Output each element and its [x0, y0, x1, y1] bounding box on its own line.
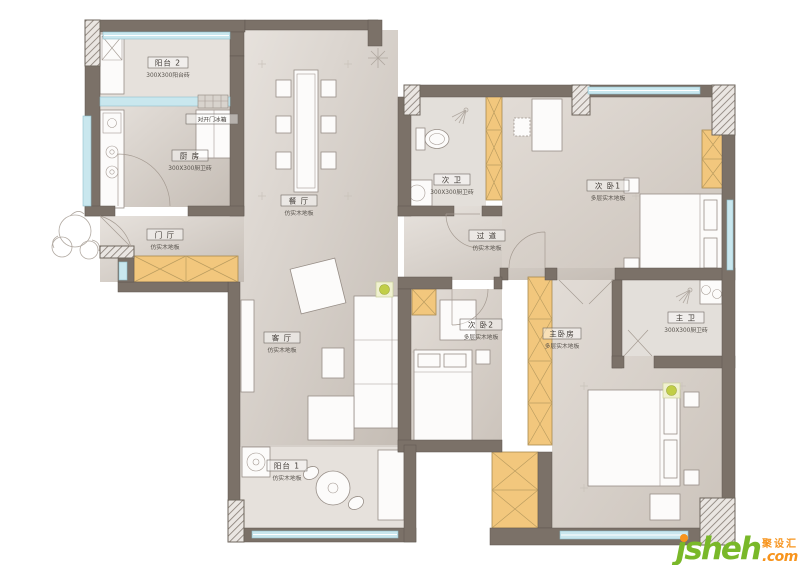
master-plant [663, 383, 680, 398]
svg-text:多层实木地板: 多层实木地板 [591, 194, 626, 202]
sofa [354, 296, 400, 428]
toilet-tank [416, 128, 425, 150]
window-hall-left [119, 262, 127, 280]
window-grille [198, 95, 228, 108]
bedroom2-pillow-1 [418, 354, 440, 367]
label-corridor: 过 道 仿实木地板 [469, 230, 505, 252]
svg-text:主卧房: 主卧房 [549, 329, 575, 339]
logo-right-block: 聚设汇 .com [762, 540, 798, 565]
label-kitchen: 厨 房 300X300厨卫砖 [168, 150, 212, 172]
wardrobe-bedroom2 [412, 289, 436, 315]
corner-plant [376, 282, 393, 297]
svg-text:仿实木地板: 仿实木地板 [273, 474, 302, 482]
svg-text:多层实木地板: 多层实木地板 [545, 342, 580, 350]
master-nightstand-1 [684, 392, 699, 407]
svg-text:厨 房: 厨 房 [180, 151, 200, 161]
label-master: 主卧房 多层实木地板 [543, 328, 581, 350]
label-balcony1: 阳台 1 仿实木地板 [267, 460, 307, 482]
dining-table [294, 70, 318, 192]
wardrobe-bath2-side [486, 95, 502, 200]
label-living: 客 厅 仿实木地板 [264, 332, 300, 354]
svg-text:300X300阳台砖: 300X300阳台砖 [146, 71, 190, 79]
washing-machine [242, 447, 270, 477]
master-nightstand-2 [684, 470, 699, 485]
logo-word: jsheh [676, 531, 760, 565]
svg-text:客 厅: 客 厅 [272, 333, 292, 343]
wardrobe-bedroom1 [702, 130, 724, 188]
svg-text:仿实木地板: 仿实木地板 [268, 346, 297, 354]
svg-text:多层实木地板: 多层实木地板 [464, 333, 499, 341]
svg-text:次 卫: 次 卫 [442, 175, 462, 185]
svg-text:仿实木地板: 仿实木地板 [285, 209, 314, 217]
window-kitchen-left [83, 116, 91, 206]
logo-dot-icon [680, 534, 688, 542]
svg-text:阳台 1: 阳台 1 [274, 461, 300, 471]
svg-text:门 厅: 门 厅 [155, 231, 175, 240]
svg-text:阳台 2: 阳台 2 [155, 58, 181, 68]
svg-text:主 卫: 主 卫 [676, 313, 696, 323]
logo-tld-text: .com [762, 550, 798, 564]
svg-text:300X300厨卫砖: 300X300厨卫砖 [168, 164, 212, 172]
label-bedroom2: 次 卧2 多层实木地板 [460, 319, 502, 341]
svg-text:次 卧2: 次 卧2 [468, 320, 494, 330]
master-pillow-2 [664, 440, 677, 478]
svg-text:过 道: 过 道 [477, 231, 497, 241]
logo-text-main: jsheh [676, 534, 760, 565]
coffee-table [322, 348, 344, 378]
logo-jsheh: jsheh 聚设汇 .com [676, 534, 798, 565]
svg-text:对开门冰箱: 对开门冰箱 [198, 116, 227, 124]
bedroom2-pillow-2 [444, 354, 466, 367]
floor-plan-page: 阳台 2 300X300阳台砖 厨 房 300X300厨卫砖 对开门冰箱 餐 厅… [0, 0, 800, 565]
wardrobe-master-south [492, 452, 538, 528]
balcony-cabinet [378, 450, 404, 520]
window-bedroom1-right [727, 200, 733, 270]
snowflake-decor-icon [368, 48, 388, 68]
label-bath1: 主 卫 300X300厨卫砖 [664, 312, 708, 334]
label-fridge: 对开门冰箱 [186, 114, 238, 124]
bedroom1-pillow-2 [704, 238, 717, 268]
shoe-cabinet-hall [134, 256, 238, 282]
kitchen-counter [100, 110, 124, 208]
svg-text:仿实木地板: 仿实木地板 [473, 244, 502, 252]
toilet-bowl [425, 130, 449, 149]
bath1-sink-counter [700, 280, 722, 304]
sofa-chaise [308, 396, 354, 440]
label-balcony2: 阳台 2 300X300阳台砖 [146, 57, 190, 79]
master-pillow-1 [664, 396, 677, 434]
svg-text:餐 厅: 餐 厅 [289, 197, 309, 206]
label-bath2: 次 卫 300X300厨卫砖 [430, 174, 474, 196]
bedroom2-nightstand [476, 350, 490, 364]
master-bench [650, 494, 680, 520]
label-dining: 餐 厅 仿实木地板 [281, 195, 317, 217]
floor-plan-canvas: 阳台 2 300X300阳台砖 厨 房 300X300厨卫砖 对开门冰箱 餐 厅… [0, 0, 800, 565]
label-bedroom1: 次 卧1 多层实木地板 [587, 180, 629, 202]
bedroom1-desk [532, 99, 562, 151]
entry-plant-sketch [52, 211, 99, 259]
balcony2-cabinet [100, 34, 124, 94]
tv-console [241, 300, 254, 392]
svg-text:300X300厨卫砖: 300X300厨卫砖 [664, 326, 708, 334]
round-table [316, 471, 350, 505]
bedroom1-pillow-1 [704, 200, 717, 230]
wardrobe-master-hall [528, 277, 552, 445]
svg-text:仿实木地板: 仿实木地板 [151, 243, 180, 251]
bedroom1-chair [514, 118, 530, 136]
svg-text:次 卧1: 次 卧1 [595, 181, 621, 191]
svg-text:300X300厨卫砖: 300X300厨卫砖 [430, 188, 474, 196]
label-hall: 门 厅 仿实木地板 [147, 229, 183, 251]
